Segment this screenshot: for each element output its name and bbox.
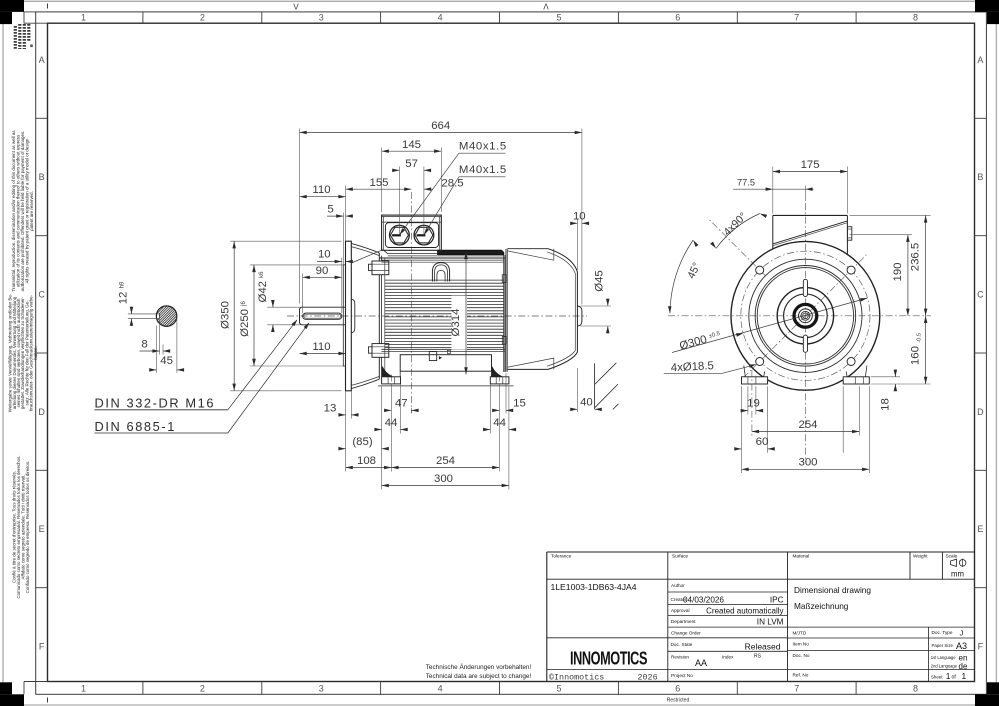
svg-text:6: 6 bbox=[675, 684, 680, 694]
svg-text:AA: AA bbox=[695, 658, 707, 668]
svg-text:60: 60 bbox=[756, 436, 769, 448]
svg-text:44: 44 bbox=[385, 417, 398, 429]
svg-text:145: 145 bbox=[402, 139, 421, 151]
svg-text:3: 3 bbox=[319, 13, 324, 23]
svg-text:Sheet: Sheet bbox=[931, 674, 943, 679]
svg-text:190: 190 bbox=[892, 262, 904, 281]
svg-text:B: B bbox=[977, 172, 983, 182]
svg-text:7: 7 bbox=[794, 13, 799, 23]
svg-text:Doc. Type: Doc. Type bbox=[932, 630, 953, 635]
svg-text:5: 5 bbox=[327, 203, 333, 215]
svg-text:4: 4 bbox=[438, 13, 443, 23]
svg-text:2: 2 bbox=[200, 13, 205, 23]
svg-text:15: 15 bbox=[513, 398, 526, 410]
svg-text:Confiado como segredo de empre: Confiado como segredo de empresa. Reserv… bbox=[25, 461, 30, 594]
svg-text:of: of bbox=[952, 675, 957, 681]
svg-text:Ø350: Ø350 bbox=[219, 301, 231, 329]
svg-text:90: 90 bbox=[316, 265, 329, 277]
svg-text:C: C bbox=[38, 290, 45, 300]
svg-text:300: 300 bbox=[434, 473, 453, 485]
svg-text:Dimensional drawing: Dimensional drawing bbox=[794, 585, 871, 595]
svg-text:5: 5 bbox=[556, 13, 561, 23]
svg-text:Restricted: Restricted bbox=[667, 698, 690, 704]
svg-text:1st Language: 1st Language bbox=[931, 655, 957, 660]
svg-text:Department: Department bbox=[671, 619, 696, 624]
svg-text:Doc. State: Doc. State bbox=[671, 642, 693, 647]
svg-text:Item No: Item No bbox=[793, 642, 810, 647]
svg-text:300: 300 bbox=[798, 457, 817, 469]
svg-text:E: E bbox=[39, 524, 45, 534]
svg-text:57: 57 bbox=[405, 158, 418, 170]
svg-text:10: 10 bbox=[318, 249, 331, 261]
svg-text:Maßzeichnung: Maßzeichnung bbox=[794, 601, 849, 611]
svg-text:M40x1.5: M40x1.5 bbox=[459, 164, 507, 176]
svg-text:7: 7 bbox=[794, 684, 799, 694]
svg-text:Author: Author bbox=[671, 583, 685, 588]
svg-text:1: 1 bbox=[946, 671, 951, 681]
svg-text:F: F bbox=[39, 642, 45, 652]
svg-text:1LE1003-1DB63-4JA4: 1LE1003-1DB63-4JA4 bbox=[551, 582, 637, 592]
svg-text:8: 8 bbox=[141, 338, 147, 350]
svg-text:V: V bbox=[293, 3, 299, 12]
svg-text:IN LVM: IN LVM bbox=[757, 617, 784, 626]
svg-text:Ø250 j6: Ø250 j6 bbox=[239, 300, 251, 336]
svg-text:Material: Material bbox=[793, 554, 810, 559]
svg-text:J: J bbox=[960, 629, 964, 638]
svg-text:D: D bbox=[38, 407, 45, 417]
svg-text:4xØ18.5: 4xØ18.5 bbox=[671, 360, 715, 374]
svg-text:A3: A3 bbox=[956, 641, 967, 651]
svg-text:E: E bbox=[977, 524, 983, 534]
svg-text:19: 19 bbox=[747, 398, 760, 410]
svg-text:Ø45: Ø45 bbox=[594, 270, 606, 292]
svg-text:M/JTD: M/JTD bbox=[793, 631, 807, 636]
svg-text:47: 47 bbox=[395, 398, 408, 410]
svg-text:Ref. No: Ref. No bbox=[793, 673, 809, 678]
svg-text:2nd Language: 2nd Language bbox=[931, 664, 958, 669]
svg-text:4: 4 bbox=[438, 684, 443, 694]
svg-text:254: 254 bbox=[436, 455, 455, 467]
svg-text:IPC: IPC bbox=[770, 595, 784, 604]
svg-text:D: D bbox=[977, 407, 984, 417]
svg-text:A: A bbox=[977, 55, 983, 65]
svg-text:B: B bbox=[39, 172, 45, 182]
svg-text:Change Order: Change Order bbox=[671, 631, 701, 636]
svg-text:664: 664 bbox=[431, 120, 450, 132]
svg-text:RS: RS bbox=[754, 654, 762, 660]
svg-text:Ø314: Ø314 bbox=[450, 309, 462, 337]
svg-text:8: 8 bbox=[913, 684, 918, 694]
svg-text:2026: 2026 bbox=[638, 672, 658, 682]
svg-text:Technische Änderungen vorbehal: Technische Änderungen vorbehalten! bbox=[426, 663, 532, 671]
svg-text:18: 18 bbox=[880, 398, 892, 411]
svg-text:(85): (85) bbox=[352, 436, 372, 448]
svg-text:108: 108 bbox=[357, 455, 376, 467]
svg-text:3: 3 bbox=[319, 684, 324, 694]
svg-text:45: 45 bbox=[160, 355, 173, 367]
svg-text:04/03/2026: 04/03/2026 bbox=[683, 595, 724, 604]
svg-text:10: 10 bbox=[573, 210, 586, 222]
svg-text:2: 2 bbox=[200, 684, 205, 694]
svg-text:254: 254 bbox=[798, 419, 817, 431]
svg-text:de: de bbox=[959, 662, 968, 671]
svg-text:110: 110 bbox=[312, 341, 330, 353]
svg-text:1: 1 bbox=[81, 13, 86, 23]
svg-text:Doc. No: Doc. No bbox=[793, 653, 810, 658]
svg-text:5: 5 bbox=[556, 684, 561, 694]
svg-text:Approval: Approval bbox=[671, 608, 690, 613]
svg-text:C: C bbox=[977, 290, 984, 300]
svg-text:Revision: Revision bbox=[671, 654, 689, 659]
svg-text:1: 1 bbox=[962, 671, 967, 681]
svg-text:44: 44 bbox=[493, 417, 506, 429]
svg-text:patent are reserved.: patent are reserved. bbox=[29, 191, 34, 231]
svg-text:Λ: Λ bbox=[543, 3, 549, 12]
svg-text:INNOMOTICS: INNOMOTICS bbox=[570, 648, 647, 669]
svg-text:Paper Size: Paper Size bbox=[932, 643, 954, 648]
svg-text:Released: Released bbox=[745, 642, 781, 652]
svg-text:halten.: halten. bbox=[33, 346, 38, 359]
svg-text:A: A bbox=[39, 55, 45, 65]
svg-text:155: 155 bbox=[369, 177, 388, 189]
svg-text:Weight: Weight bbox=[913, 554, 928, 559]
svg-text:DIN 6885-1: DIN 6885-1 bbox=[95, 419, 176, 434]
svg-text:Created automatically: Created automatically bbox=[706, 606, 783, 615]
svg-text:110: 110 bbox=[312, 184, 330, 196]
svg-text:Technical data are subject to: Technical data are subject to change! bbox=[426, 673, 532, 680]
svg-text:Project No: Project No bbox=[671, 673, 693, 678]
svg-text:DIN 332-DR M16: DIN 332-DR M16 bbox=[95, 396, 216, 411]
svg-text:M40x1.5: M40x1.5 bbox=[459, 141, 507, 153]
svg-text:Tolerance: Tolerance bbox=[551, 554, 572, 559]
svg-text:40: 40 bbox=[580, 397, 593, 409]
svg-text:13: 13 bbox=[324, 402, 337, 414]
svg-text:8: 8 bbox=[913, 13, 918, 23]
svg-text:©Innomotics: ©Innomotics bbox=[549, 672, 604, 682]
svg-text:Scale: Scale bbox=[946, 554, 958, 559]
svg-text:Surface: Surface bbox=[672, 554, 689, 559]
svg-text:236.5: 236.5 bbox=[909, 243, 921, 272]
svg-text:Index: Index bbox=[722, 654, 734, 659]
svg-text:6: 6 bbox=[675, 13, 680, 23]
svg-text:1: 1 bbox=[81, 684, 86, 694]
svg-text:175: 175 bbox=[801, 159, 820, 171]
svg-text:77.5: 77.5 bbox=[737, 178, 755, 188]
svg-text:F: F bbox=[978, 642, 984, 652]
svg-text:mm: mm bbox=[951, 570, 964, 579]
